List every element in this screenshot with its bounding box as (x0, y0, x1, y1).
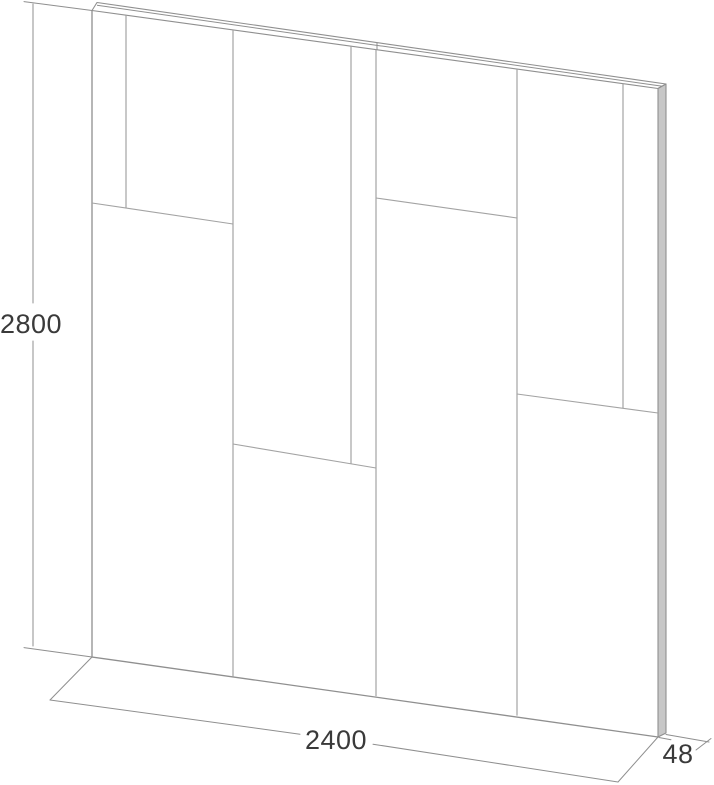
wall-panel-drawing: 2800 2400 48 (0, 0, 714, 785)
width-extension-line-right (618, 737, 658, 782)
depth-dimension: 48 (659, 735, 711, 770)
wall-right-edge-face (658, 84, 666, 737)
width-dimension-line (373, 744, 618, 782)
height-dimension-label: 2800 (0, 309, 62, 339)
wall-front-face (92, 11, 658, 738)
height-extension-line-bottom (24, 648, 92, 657)
height-extension-line-top (24, 2, 92, 11)
height-dimension: 2800 (0, 2, 92, 657)
width-dimension-label: 2400 (305, 725, 367, 755)
width-dimension-line (50, 700, 300, 734)
depth-dimension-label: 48 (662, 739, 693, 769)
width-extension-line-left (50, 657, 92, 700)
drawing-canvas: 2800 2400 48 (0, 0, 714, 785)
